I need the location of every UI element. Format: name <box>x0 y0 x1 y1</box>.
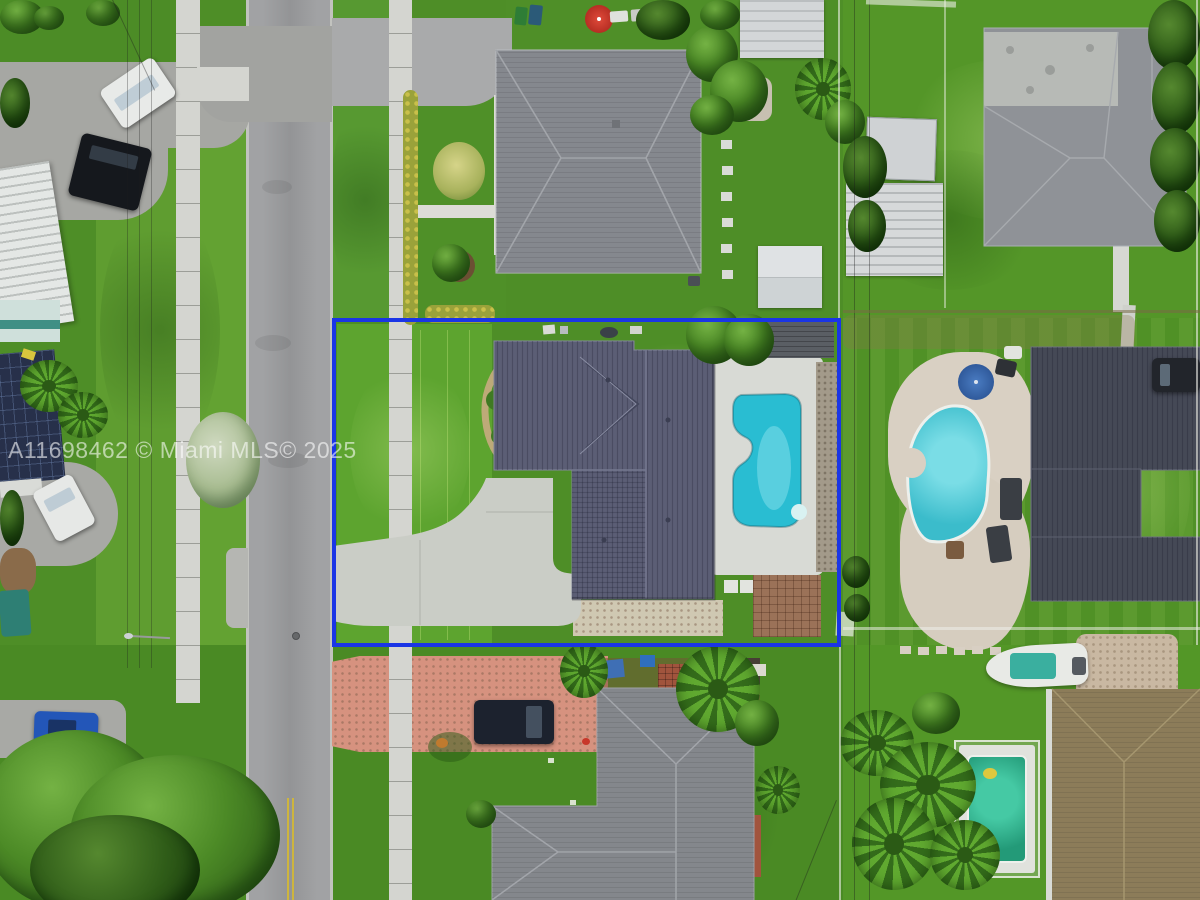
palm-tree <box>58 392 108 438</box>
fence-line <box>1196 0 1198 645</box>
car-windshield <box>1160 364 1170 386</box>
hedge-right-edge <box>1150 128 1200 194</box>
fence-bottom-vertical <box>839 645 841 900</box>
top-neighbor-house <box>496 50 701 273</box>
tree-top-center <box>636 0 690 40</box>
palm-row <box>843 136 887 198</box>
street-light-head <box>124 633 133 639</box>
car-windshield <box>526 706 542 738</box>
bush <box>912 692 960 734</box>
power-line <box>869 0 870 900</box>
fence-line <box>944 0 946 308</box>
manhole-cover <box>292 632 300 640</box>
hedge-right-edge <box>1152 62 1200 134</box>
car-windshield <box>114 74 160 111</box>
right-neighbor-car <box>1152 358 1200 392</box>
aerial-photo: A11698462 © Miami MLS© 2025 <box>0 0 1200 900</box>
back-fence <box>843 310 1200 313</box>
power-line <box>127 0 128 668</box>
bush <box>0 78 30 128</box>
mls-watermark: A11698462 © Miami MLS© 2025 <box>8 436 357 465</box>
fence-line <box>838 0 840 320</box>
palm-cluster <box>930 820 1000 890</box>
bush <box>735 700 779 746</box>
boundary-hedge <box>844 594 870 622</box>
subject-property-outline <box>332 318 841 647</box>
car-windshield <box>89 145 139 170</box>
palm-tree <box>756 766 800 814</box>
power-line <box>139 0 140 668</box>
palm-cluster <box>852 798 936 890</box>
hedge-right-edge <box>1148 0 1200 70</box>
garden-canopy <box>690 95 734 135</box>
hedge-right-edge <box>1154 190 1200 252</box>
bush <box>34 6 64 30</box>
tree-top-center <box>700 0 740 30</box>
palm-tree <box>560 644 608 698</box>
parked-dark-suv <box>474 700 554 744</box>
power-line <box>854 0 855 900</box>
car-windshield <box>43 487 76 513</box>
boundary-hedge <box>842 556 870 588</box>
bush <box>466 800 496 828</box>
street-center-line <box>292 798 294 900</box>
power-line <box>151 0 152 668</box>
fence-right-neighbor <box>843 627 1200 630</box>
bottom-right-neighbor-house <box>1046 689 1200 900</box>
street-center-line <box>287 798 289 900</box>
